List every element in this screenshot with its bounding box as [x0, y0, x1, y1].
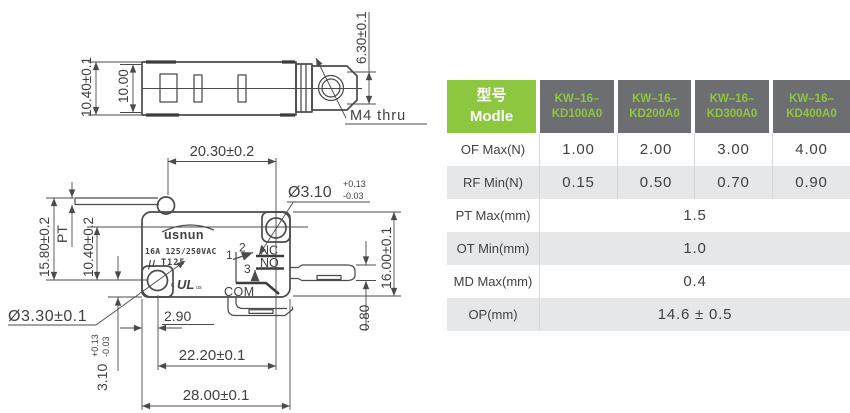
model-column-kd300a0: KW–16– KD300A0 — [695, 80, 773, 133]
lever-arm — [75, 198, 159, 205]
terminal-3-label: 3 — [244, 262, 251, 276]
dim-end-height: 6.30±0.1 — [354, 12, 369, 64]
hole-edge-tol-minus: -0.03 — [101, 336, 111, 357]
hole-top-dia-label: Ø3.10 — [288, 184, 332, 201]
dim-terminal-thickness: 0.80 — [357, 305, 372, 331]
brand-logo: usnun — [164, 228, 204, 242]
dim-hole-edge: 3.10 — [94, 364, 110, 391]
pretravel-label: PT — [54, 225, 70, 243]
top-view: 10.40±0.1 10.00 6.30±0.1 M4 thru — [79, 12, 427, 124]
table-row-ot-min: OT Min(mm) 1.0 — [447, 232, 850, 265]
dim-top-span: 20.30±0.2 — [190, 144, 254, 160]
row-label: OT Min(mm) — [447, 232, 540, 265]
model-header-cn: 型号 — [447, 86, 536, 106]
dim-lever-height: 15.80±0.2 — [37, 217, 52, 277]
dim-topview-outer-width: 10.40±0.1 — [79, 57, 94, 117]
row-label: RF Min(N) — [447, 166, 540, 199]
table-cell: 0.90 — [773, 166, 850, 199]
row-label: OF Max(N) — [447, 133, 540, 166]
spec-table: 型号 Modle KW–16– KD100A0 KW–16– KD200A0 K… — [447, 80, 850, 331]
dim-hole-span: 22.20±0.1 — [179, 347, 246, 364]
table-row-op: OP(mm) 14.6 ± 0.5 — [447, 298, 850, 331]
technical-drawing: 10.40±0.1 10.00 6.30±0.1 M4 thru usnun 1… — [0, 0, 440, 413]
dim-body-width: 28.00±0.1 — [183, 387, 250, 404]
side-terminal — [290, 265, 355, 281]
model-column-kd200a0: KW–16– KD200A0 — [618, 80, 695, 133]
ul-c: c — [171, 282, 175, 289]
circuit-schematic: 1 2 3 NC NO COM — [224, 241, 284, 300]
terminal-2-label: 2 — [239, 241, 246, 255]
hole-edge-tol-plus: +0.13 — [90, 334, 100, 357]
model-header-en: Modle — [447, 107, 536, 127]
row-label: MD Max(mm) — [447, 265, 540, 298]
com-label: COM — [224, 285, 255, 299]
table-cell: 0.70 — [695, 166, 773, 199]
dim-hole-vertical: 10.40±0.2 — [81, 217, 96, 277]
model-header-cell: 型号 Modle — [447, 80, 540, 133]
table-cell-merged: 0.4 — [540, 265, 850, 298]
mu-symbol: µ — [148, 255, 156, 270]
ul-us: us — [196, 285, 202, 291]
rating-text: 16A 125/250VAC — [145, 247, 217, 256]
table-cell: 0.15 — [540, 166, 618, 199]
hole-top-tol-minus: -0.03 — [343, 191, 364, 201]
table-cell: 4.00 — [773, 133, 850, 166]
table-cell-merged: 1.0 — [540, 232, 850, 265]
terminal-1-label: 1 — [226, 248, 233, 262]
table-cell: 3.00 — [695, 133, 773, 166]
front-view: usnun 16A 125/250VAC µ T125 c UL us 1 2 … — [8, 144, 401, 410]
table-cell: 1.00 — [540, 133, 618, 166]
table-row-of-max: OF Max(N) 1.00 2.00 3.00 4.00 — [447, 133, 850, 166]
model-column-kd400a0: KW–16– KD400A0 — [773, 80, 850, 133]
hole-bottom-dia-label: Ø3.30±0.1 — [8, 308, 87, 325]
table-row-pt-max: PT Max(mm) 1.5 — [447, 199, 850, 232]
table-cell: 0.50 — [618, 166, 695, 199]
row-label: OP(mm) — [447, 298, 540, 331]
dim-hole-offset: 2.90 — [164, 308, 191, 324]
datasheet-page: { "colors": { "accent_green": "#8DC63F",… — [0, 0, 850, 413]
table-row-rf-min: RF Min(N) 0.15 0.50 0.70 0.90 — [447, 166, 850, 199]
model-column-kd100a0: KW–16– KD100A0 — [540, 80, 618, 133]
dim-body-height: 16.00±0.1 — [378, 227, 394, 289]
table-cell: 2.00 — [618, 133, 695, 166]
table-row-md-max: MD Max(mm) 0.4 — [447, 265, 850, 298]
dim-topview-inner-width: 10.00 — [116, 69, 131, 103]
table-cell-merged: 1.5 — [540, 199, 850, 232]
hole-top-tol-plus: +0.13 — [343, 179, 366, 189]
ul-mark-icon: UL — [177, 277, 194, 292]
spec-table-header-row: 型号 Modle KW–16– KD100A0 KW–16– KD200A0 K… — [447, 80, 850, 133]
m4-thru-label: M4 thru — [350, 108, 406, 124]
row-label: PT Max(mm) — [447, 199, 540, 232]
table-cell-merged: 14.6 ± 0.5 — [540, 298, 850, 331]
